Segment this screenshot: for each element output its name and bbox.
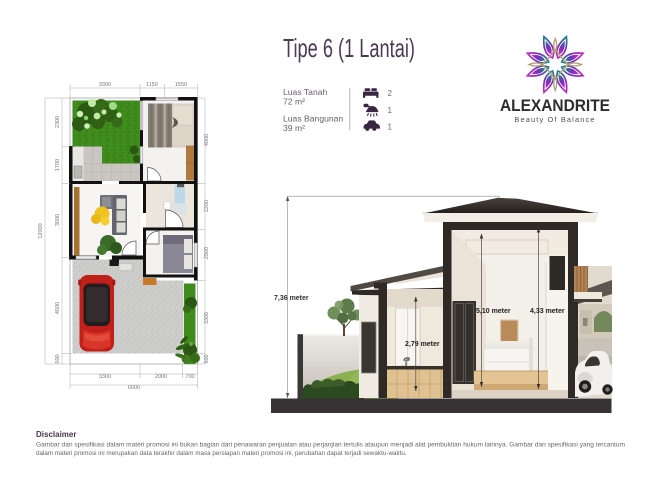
svg-text:39 m²: 39 m²	[283, 123, 305, 133]
svg-text:7,36 meter: 7,36 meter	[274, 295, 309, 302]
svg-text:6000: 6000	[128, 385, 140, 391]
svg-text:72 m²: 72 m²	[283, 97, 305, 107]
svg-text:Tipe 6 (1 Lantai): Tipe 6 (1 Lantai)	[283, 33, 415, 63]
svg-text:5,10 meter: 5,10 meter	[476, 308, 511, 315]
svg-text:Luas Bangunan: Luas Bangunan	[283, 114, 343, 124]
svg-text:4500: 4500	[55, 302, 61, 314]
svg-text:1: 1	[388, 106, 393, 115]
svg-text:3500: 3500	[55, 214, 61, 226]
svg-text:Gambar dan spesifikasi dalam m: Gambar dan spesifikasi dalam materi prom…	[36, 442, 625, 449]
svg-text:Beauty Of Balance: Beauty Of Balance	[514, 115, 595, 124]
svg-text:2: 2	[388, 89, 393, 98]
svg-text:1: 1	[388, 122, 393, 131]
svg-text:3300: 3300	[99, 374, 111, 380]
svg-text:1150: 1150	[146, 82, 158, 88]
svg-text:dalam materi promosi ini merup: dalam materi promosi ini merupakan data …	[36, 450, 407, 457]
svg-text:12000: 12000	[38, 223, 44, 238]
svg-text:2000: 2000	[155, 374, 167, 380]
svg-text:Disclaimer: Disclaimer	[36, 430, 76, 439]
svg-text:Luas Tanah: Luas Tanah	[283, 87, 328, 97]
svg-text:1700: 1700	[55, 159, 61, 171]
svg-text:2300: 2300	[55, 116, 61, 128]
svg-text:700: 700	[185, 374, 194, 380]
svg-text:1550: 1550	[175, 82, 187, 88]
svg-text:2,79 meter: 2,79 meter	[405, 341, 440, 348]
svg-text:ALEXANDRITE: ALEXANDRITE	[500, 97, 610, 115]
svg-text:4,33 meter: 4,33 meter	[530, 308, 565, 315]
svg-text:3300: 3300	[99, 82, 111, 88]
svg-text:500: 500	[55, 354, 61, 363]
